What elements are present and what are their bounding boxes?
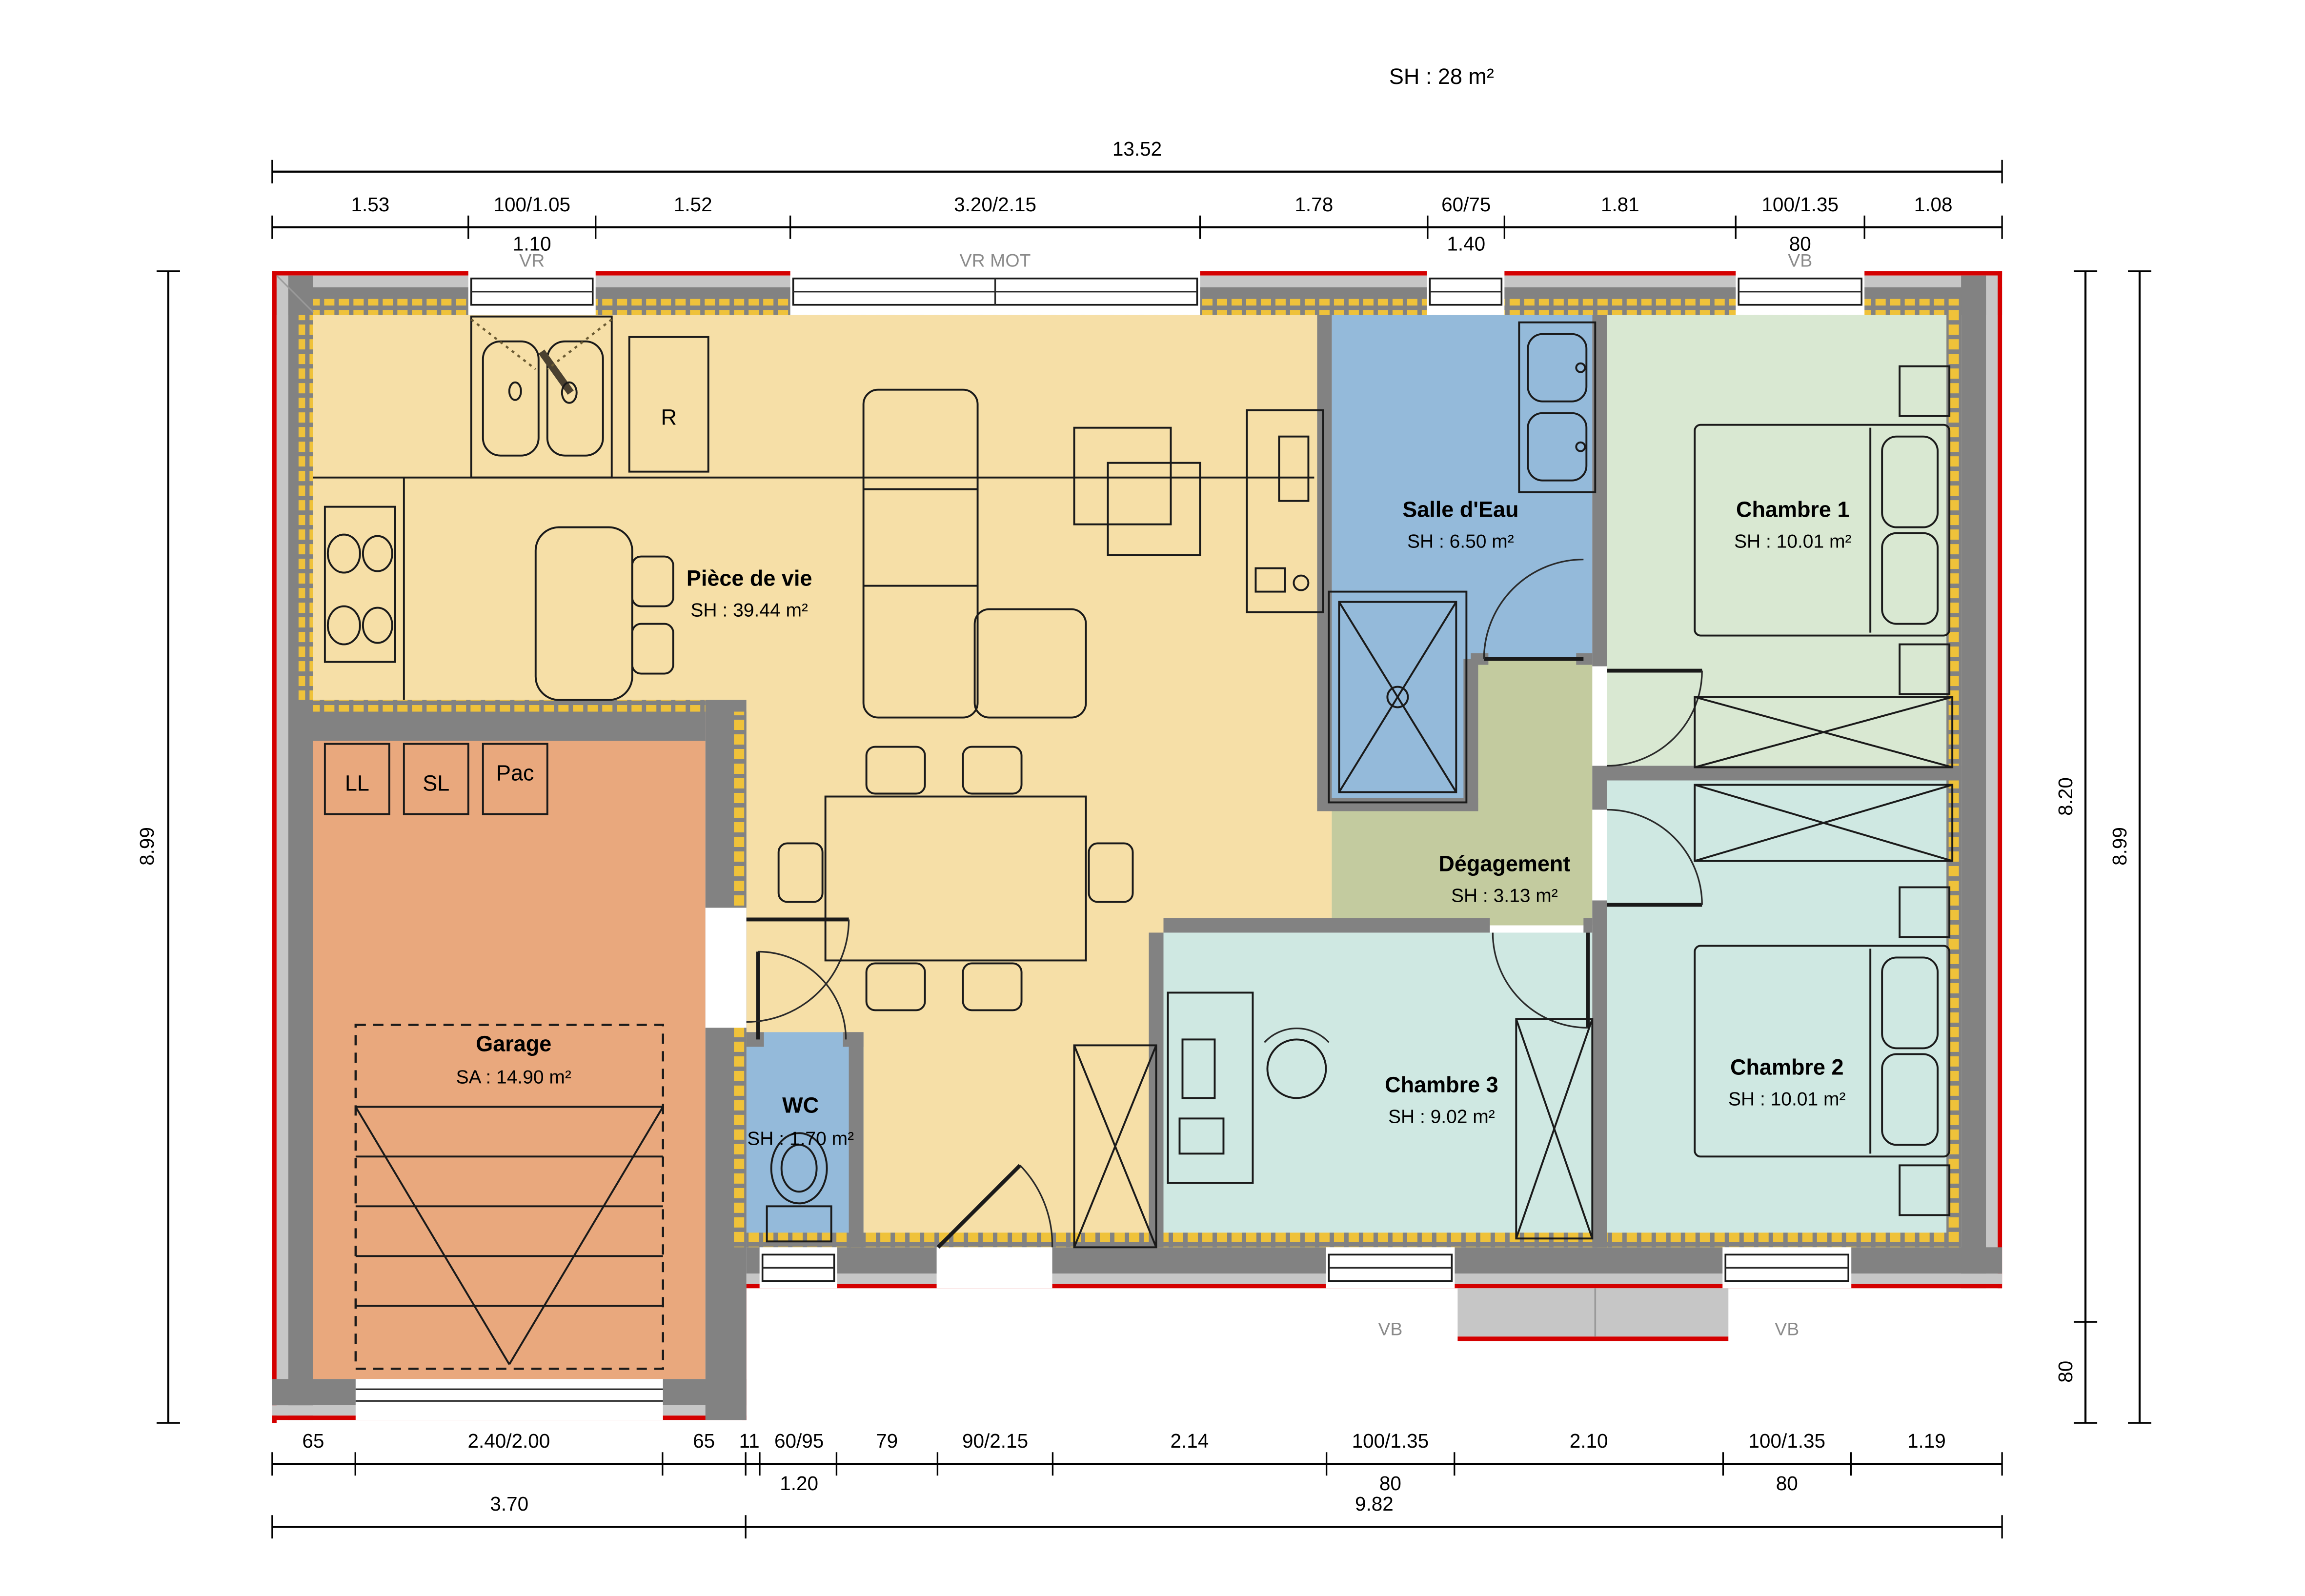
room-area-wc: SH : 1.70 m² bbox=[747, 1128, 854, 1149]
dim-bot-seg-8: 100/1.35 bbox=[1352, 1430, 1429, 1452]
room-label-chambre1: Chambre 1 bbox=[1736, 497, 1849, 522]
dim-bot-seg-3: 11 bbox=[739, 1430, 760, 1452]
window-wc bbox=[763, 1254, 834, 1281]
dim-top-sill-1: 1.40 bbox=[1447, 233, 1485, 255]
room-label-salle-eau: Salle d'Eau bbox=[1402, 497, 1518, 522]
dim-top-seg-7: 100/1.35 bbox=[1761, 193, 1839, 216]
room-fill-chambre3 bbox=[1163, 932, 1592, 1247]
dim-top-seg-5: 60/75 bbox=[1441, 193, 1491, 216]
window-vb-chambre2 bbox=[1725, 1254, 1848, 1281]
dim-top-seg-3: 3.20/2.15 bbox=[954, 193, 1036, 216]
label-dryer: SL bbox=[423, 771, 449, 796]
room-label-wc: WC bbox=[782, 1092, 819, 1117]
room-area-chambre3: SH : 9.02 m² bbox=[1388, 1106, 1495, 1127]
room-area-degagement: SH : 3.13 m² bbox=[1451, 885, 1558, 906]
room-label-chambre2: Chambre 2 bbox=[1730, 1054, 1843, 1079]
dim-bot-seg-1: 2.40/2.00 bbox=[467, 1430, 550, 1452]
floor-plan-page: SH : 28 m² 13.52 1.53 100/1.05 1.52 3.20… bbox=[0, 0, 2305, 1596]
dim-bot-total-0: 3.70 bbox=[490, 1493, 528, 1515]
room-area-salle-eau: SH : 6.50 m² bbox=[1407, 531, 1514, 552]
dim-bot-sill-0: 1.20 bbox=[780, 1472, 818, 1495]
dim-top-seg-4: 1.78 bbox=[1294, 193, 1333, 216]
tag-vb-bottom-1: VB bbox=[1378, 1318, 1402, 1339]
dim-top-seg-2: 1.52 bbox=[674, 193, 712, 216]
dim-top-seg-1: 100/1.05 bbox=[493, 193, 570, 216]
label-heat-pump: Pac bbox=[496, 761, 534, 786]
dim-bot-seg-10: 100/1.35 bbox=[1748, 1430, 1825, 1452]
tag-vr-mot: VR MOT bbox=[960, 250, 1031, 271]
window-vb-chambre1 bbox=[1739, 279, 1861, 305]
dim-bot-seg-9: 2.10 bbox=[1570, 1430, 1608, 1452]
terrace-slab bbox=[1457, 1288, 1728, 1341]
tag-vb-bottom-2: VB bbox=[1775, 1318, 1799, 1339]
tag-vr: VR bbox=[519, 250, 545, 271]
dim-bot-seg-5: 79 bbox=[876, 1430, 898, 1452]
dim-bot-seg-0: 65 bbox=[302, 1430, 324, 1452]
window-vr-kitchen bbox=[471, 279, 593, 305]
dim-bot-sill-1: 80 bbox=[1379, 1472, 1401, 1495]
dim-bot-seg-7: 2.14 bbox=[1170, 1430, 1209, 1452]
room-fill-chambre2 bbox=[1607, 781, 1961, 1248]
dim-bot-seg-4: 60/95 bbox=[774, 1430, 824, 1452]
dim-bot-seg-6: 90/2.15 bbox=[962, 1430, 1028, 1452]
dim-top-seg-8: 1.08 bbox=[1914, 193, 1953, 216]
dim-bot-seg-2: 65 bbox=[693, 1430, 715, 1452]
room-label-chambre3: Chambre 3 bbox=[1385, 1072, 1498, 1097]
dim-right-inner-bottom: 80 bbox=[2054, 1361, 2077, 1383]
window-vb-chambre3 bbox=[1329, 1254, 1452, 1281]
window-salle-eau bbox=[1430, 279, 1501, 305]
label-fridge: R bbox=[661, 405, 677, 430]
room-area-chambre1: SH : 10.01 m² bbox=[1734, 531, 1852, 552]
floor-plan-drawing: SH : 28 m² 13.52 1.53 100/1.05 1.52 3.20… bbox=[0, 0, 2305, 1596]
dim-right-outer: 8.99 bbox=[2108, 827, 2131, 866]
room-fills bbox=[313, 315, 1961, 1379]
room-label-garage: Garage bbox=[476, 1031, 551, 1056]
room-area-chambre2: SH : 10.01 m² bbox=[1728, 1089, 1846, 1110]
tag-vb-top: VB bbox=[1788, 250, 1812, 271]
dim-top-seg-0: 1.53 bbox=[351, 193, 389, 216]
window-bay-vr-mot bbox=[793, 279, 1197, 305]
plan-title: SH : 28 m² bbox=[1389, 64, 1494, 89]
room-label-piece-de-vie: Pièce de vie bbox=[687, 566, 812, 591]
dim-top-seg-6: 1.81 bbox=[1601, 193, 1639, 216]
dim-right-inner: 8.20 bbox=[2054, 777, 2077, 816]
room-area-piece-de-vie: SH : 39.44 m² bbox=[690, 600, 808, 621]
dim-left-total: 8.99 bbox=[136, 827, 158, 866]
dim-bot-sill-2: 80 bbox=[1776, 1472, 1798, 1495]
room-label-degagement: Dégagement bbox=[1438, 851, 1570, 876]
room-area-garage: SA : 14.90 m² bbox=[456, 1067, 571, 1088]
dim-bot-seg-11: 1.19 bbox=[1907, 1430, 1946, 1452]
dim-bot-total-1: 9.82 bbox=[1355, 1493, 1394, 1515]
label-washing-machine: LL bbox=[345, 771, 369, 796]
dim-top-total: 13.52 bbox=[1112, 138, 1162, 160]
